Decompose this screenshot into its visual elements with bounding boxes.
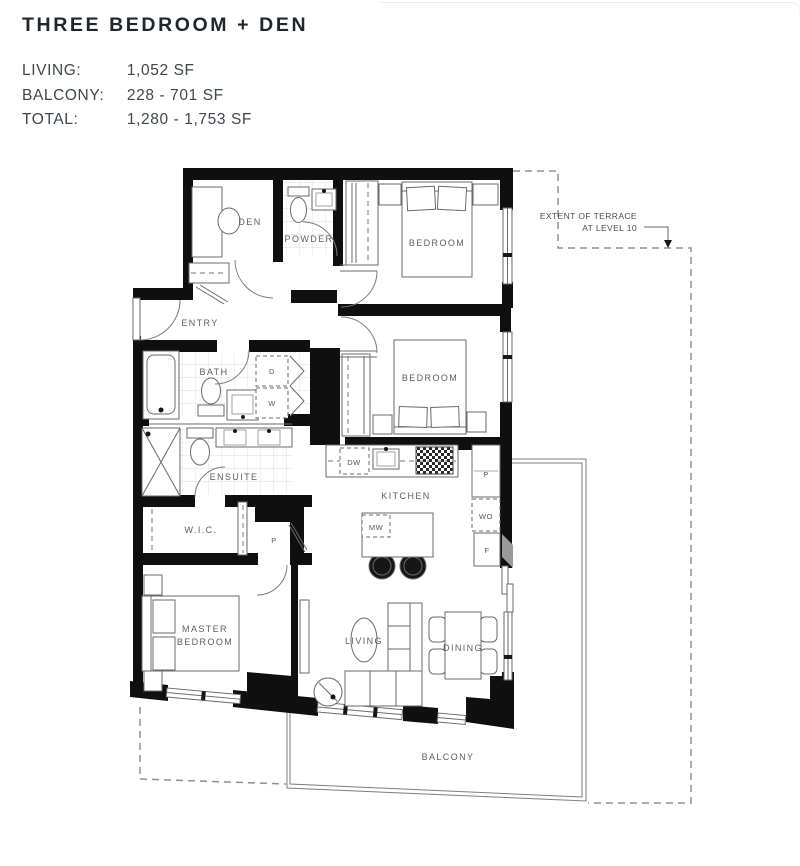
room-bedroom2: BEDROOM <box>340 317 486 436</box>
bedroom1-label: BEDROOM <box>409 238 465 248</box>
den-door-arc <box>235 260 273 298</box>
pillow <box>153 637 175 670</box>
dryer-label: D <box>269 367 275 376</box>
wall-oven-label: WO <box>479 512 493 521</box>
master-label-1: MASTER <box>182 624 228 634</box>
nightstand <box>144 671 162 691</box>
bedroom2-label: BEDROOM <box>402 373 458 383</box>
master-door-arc <box>257 565 287 595</box>
master-label-2: BEDROOM <box>177 637 233 647</box>
bedroom2-closet <box>342 354 370 436</box>
pillow <box>153 600 175 633</box>
terrace-note-line1: EXTENT OF TERRACE <box>540 211 637 221</box>
entry-door-arc <box>140 300 180 340</box>
master-window <box>166 688 241 704</box>
dining-chair <box>429 617 446 642</box>
wic-label: W.I.C. <box>185 525 218 535</box>
hall-closet-label: P <box>271 536 277 545</box>
toilet-tank <box>288 187 309 196</box>
dining-label: DINING <box>443 643 483 653</box>
room-kitchen: DW MW P WO F KITCHEN <box>326 445 500 579</box>
balcony-sliding-door <box>502 534 513 612</box>
desk-chair <box>218 208 240 234</box>
room-master-bedroom: MASTER BEDROOM <box>142 565 309 691</box>
dining-window <box>437 713 466 725</box>
bedroom2-window <box>503 332 512 402</box>
nightstand <box>144 575 162 595</box>
toilet-tank <box>187 428 213 438</box>
sliding-panel <box>300 600 309 673</box>
pillow <box>431 407 460 428</box>
kitchen-label: KITCHEN <box>381 491 430 501</box>
pillow <box>406 186 435 210</box>
microwave-label: MW <box>369 523 384 532</box>
room-living: LIVING <box>314 603 422 706</box>
cooktop <box>416 447 453 474</box>
bedroom2-door-arc <box>341 317 377 353</box>
bedroom1-window <box>503 208 512 284</box>
room-wic: W.I.C. <box>152 502 247 555</box>
room-dining: DINING <box>429 612 497 679</box>
floorplan: EXTENT OF TERRACE AT LEVEL 10 BALCONY <box>0 0 800 866</box>
bedroom1-closet <box>346 181 378 265</box>
balcony-label: BALCONY <box>422 752 475 762</box>
toilet-tank <box>198 405 224 416</box>
entry-door-leaf <box>133 298 140 340</box>
nightstand <box>473 184 498 205</box>
sofa-chaise <box>345 671 422 706</box>
dining-chair <box>480 617 497 642</box>
pantry-label: P <box>483 470 489 479</box>
washer-label: W <box>268 399 276 408</box>
pillow <box>399 407 428 428</box>
fridge-label: F <box>484 546 489 555</box>
pillow <box>437 186 466 210</box>
desk <box>192 187 222 257</box>
bedroom1-door-arc <box>341 271 377 307</box>
dishwasher-label: DW <box>347 458 361 467</box>
bath-label: BATH <box>200 367 229 377</box>
living-label: LIVING <box>345 636 383 646</box>
ensuite-label: ENSUITE <box>210 472 259 482</box>
entry-label: ENTRY <box>181 318 218 328</box>
toilet <box>291 198 307 223</box>
sofa <box>388 603 422 673</box>
living-window <box>504 612 512 680</box>
toilet <box>191 439 210 465</box>
room-den: DEN <box>189 187 273 304</box>
toilet <box>202 378 221 404</box>
room-bedroom1: BEDROOM <box>340 181 498 307</box>
nightstand <box>379 184 401 205</box>
nightstand <box>467 412 486 432</box>
terrace-note-line2: AT LEVEL 10 <box>582 223 637 233</box>
terrace-note-leader <box>644 227 668 241</box>
nightstand <box>373 415 392 434</box>
room-entry: ENTRY <box>133 298 219 340</box>
terrace-note-arrow <box>664 240 672 248</box>
ensuite-vanity <box>216 428 292 447</box>
powder-label: POWDER <box>285 234 334 244</box>
den-label: DEN <box>238 217 261 227</box>
